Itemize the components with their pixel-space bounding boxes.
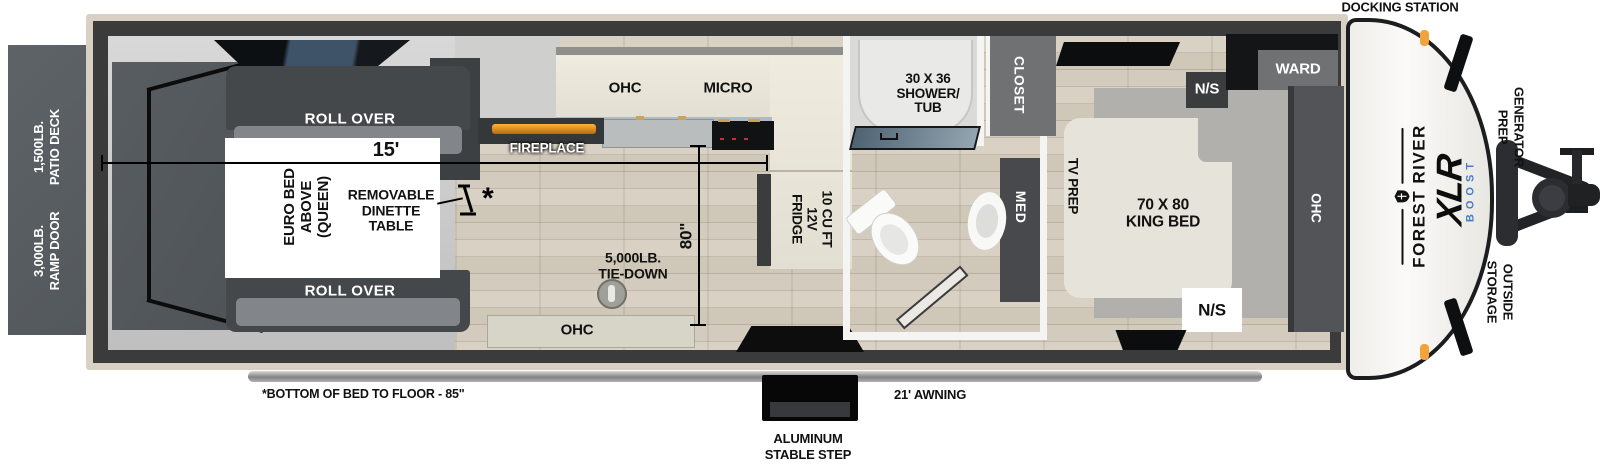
shower-label: 30 X 36 SHOWER/ TUB — [896, 72, 959, 116]
patio-deck-panel — [8, 45, 86, 335]
stove-indicator-lights — [720, 138, 756, 140]
fridge-label: 10 CU FT 12V FRIDGE — [789, 191, 834, 248]
height-dimension-tick-bottom — [690, 324, 706, 326]
rule-dash-left — [1401, 209, 1403, 265]
shower-door — [849, 126, 981, 150]
length-dimension-tick-left — [101, 155, 103, 171]
entry-step-tread — [770, 402, 850, 417]
patio-deck-label: 1,500LB. PATIO DECK — [31, 109, 64, 185]
bathroom-vanity — [1000, 158, 1040, 302]
hitch-coupler — [1568, 184, 1600, 206]
stove-handle-right — [748, 119, 760, 122]
tv-prep-label: TV PREP — [1065, 158, 1080, 214]
awning-label: 21' AWNING — [894, 388, 966, 403]
outside-storage-label: OUTSIDE STORAGE — [1484, 261, 1515, 324]
roll-over-label-bottom: ROLL OVER — [305, 284, 396, 301]
nightstand-top-label: N/S — [1195, 82, 1219, 99]
king-bed-label: 70 X 80 KING BED — [1126, 197, 1200, 232]
roll-over-label-top: ROLL OVER — [305, 112, 396, 129]
ohc-bottom-label: OHC — [561, 323, 594, 340]
closet-label: CLOSET — [1011, 56, 1026, 114]
tie-down-anchor-slot — [608, 285, 615, 302]
bathroom-wall-right — [1040, 132, 1047, 340]
bed-height-note: *BOTTOM OF BED TO FLOOR - 85" — [262, 387, 464, 401]
dinette-label: REMOVABLE DINETTE TABLE — [348, 187, 435, 234]
kitchen-ohc-label: OHC — [609, 81, 642, 98]
manufacturer-name: FOREST RIVER — [1410, 124, 1430, 268]
micro-label: MICRO — [704, 81, 753, 98]
generator-prep-label: GENERATOR PREP — [1495, 87, 1526, 167]
rule-dash-right — [1401, 128, 1403, 184]
forest-river-logo: FOREST RIVER — [1395, 124, 1430, 268]
length-dimension-label: 15' — [373, 139, 399, 161]
hood-knob-right — [678, 116, 686, 120]
king-bed-notch — [1198, 118, 1234, 162]
xlr-boost-logo: XLR BOOST — [1433, 156, 1476, 225]
fridge-edge — [757, 174, 771, 266]
tie-down-label: 5,000LB. TIE-DOWN — [598, 250, 667, 281]
step-label: ALUMINUM STABLE STEP — [765, 431, 851, 464]
bedroom-window-top — [1056, 42, 1188, 66]
fridge-seam — [770, 170, 852, 172]
hood-knob-left — [636, 116, 644, 120]
wardrobe-label: WARD — [1275, 62, 1320, 79]
hitch-wheel — [1532, 178, 1572, 218]
euro-bed-label: EURO BED ABOVE (QUEEN) — [282, 168, 332, 246]
bathroom-wall-left — [843, 36, 850, 340]
bedroom-window-bottom — [1114, 330, 1188, 350]
forest-river-rule — [1395, 124, 1410, 268]
height-dimension-tick-top — [690, 145, 706, 147]
med-label: MED — [1012, 191, 1028, 224]
awning-bar — [248, 371, 1262, 382]
roll-over-sofa-bottom-cushion — [236, 298, 460, 326]
nightstand-bottom-label: N/S — [1198, 300, 1226, 319]
docking-station-label: DOCKING STATION — [1341, 1, 1458, 16]
bedroom-ohc-label: OHC — [1308, 193, 1323, 222]
bathroom-wall-bottom — [843, 332, 1047, 340]
shower-door-handle — [880, 133, 898, 140]
fireplace-glow — [492, 124, 596, 134]
marker-light-top — [1420, 30, 1429, 46]
tie-down-anchor-icon — [597, 279, 627, 309]
dinette-asterisk: * — [482, 184, 494, 214]
height-dimension-label: 80" — [676, 223, 695, 249]
range-stove — [712, 121, 774, 150]
length-dimension-tick-right — [766, 155, 768, 171]
ramp-door-label: 3,000LB. RAMP DOOR — [31, 212, 64, 291]
forest-river-shield-icon — [1395, 190, 1410, 203]
marker-light-bottom — [1420, 344, 1429, 360]
series-name: XLR — [1433, 153, 1465, 227]
length-dimension-line — [102, 162, 768, 164]
range-hood — [602, 119, 714, 148]
ramp-frame-vertical — [147, 90, 151, 302]
height-dimension-line — [698, 146, 700, 326]
fireplace-label: FIREPLACE — [510, 140, 585, 155]
stove-handle-left — [718, 119, 730, 122]
floorplan: 1,500LB. PATIO DECK 3,000LB. RAMP DOOR R… — [0, 0, 1600, 464]
